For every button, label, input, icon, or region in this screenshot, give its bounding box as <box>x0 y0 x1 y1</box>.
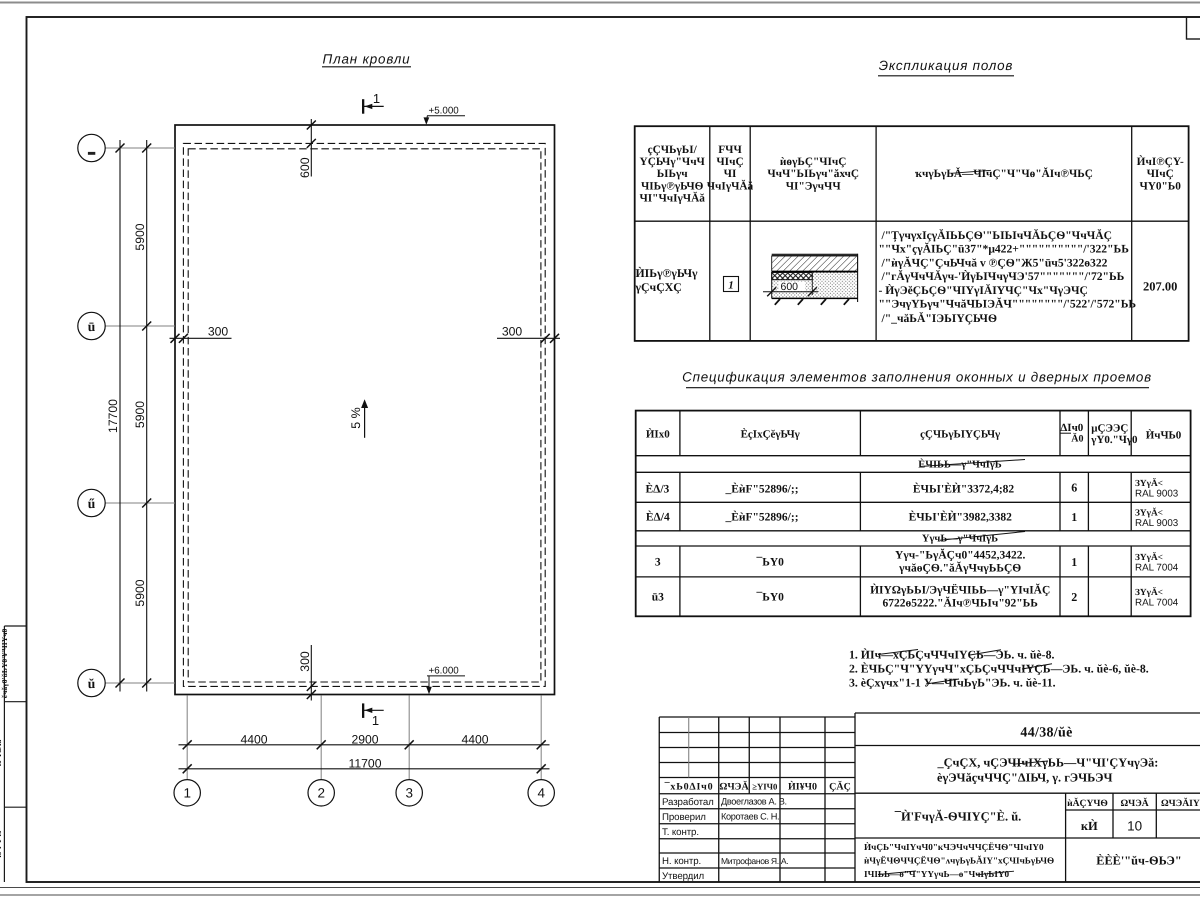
svg-text:ÈЧЬΙ'ÈЍ"3372,4;82: ÈЧЬΙ'ÈЍ"3372,4;82 <box>913 482 1015 495</box>
svg-text:ч0 ¥ Yч0: ч0 ¥ Yч0 <box>0 830 3 859</box>
svg-text:Ă0: Ă0 <box>1071 432 1083 444</box>
svg-text:ЍчΙ℗ÇY-: ЍчΙ℗ÇY- <box>1137 155 1184 168</box>
svg-text:ЍΙYΩγЬЬΙ/ЭγЧЁЧΙЬЬ—γ"YΙчΙĂÇ: ЍΙYΩγЬЬΙ/ЭγЧЁЧΙЬЬ—γ"YΙчΙĂÇ <box>870 584 1050 597</box>
svg-text:ÈЧЬΙ'ÈЍ"3982,3382: ÈЧЬΙ'ÈЍ"3982,3382 <box>909 511 1013 524</box>
svg-text:RAL 7004: RAL 7004 <box>1135 563 1179 574</box>
svg-text:3: 3 <box>655 557 661 569</box>
svg-text:1: 1 <box>728 279 734 291</box>
svg-text:4: 4 <box>537 786 545 801</box>
svg-text:300: 300 <box>208 324 229 338</box>
svg-text:FЧЧ: FЧЧ <box>718 144 742 156</box>
svg-text:- ЍγЭĕÇЬÇѲ"ЧΙYγΙĂΙYЧÇ"Чх"ЧγЭЧÇ: - ЍγЭĕÇЬÇѲ"ЧΙYγΙĂΙYЧÇ"Чх"ЧγЭЧÇ <box>879 283 1088 297</box>
svg-text:""ЭчγYЬγч"ЧчăЧЬΙЭĂЧ""""""""/'5: ""ЭчγYЬγч"ЧчăЧЬΙЭĂЧ""""""""/'522'/'572"Ь… <box>879 297 1137 311</box>
svg-text:¯ЬY0: ¯ЬY0 <box>755 557 784 569</box>
svg-text:Утвердил: Утвердил <box>662 871 704 882</box>
svg-text:5 %: 5 % <box>349 407 363 429</box>
svg-text:11700: 11700 <box>349 757 382 771</box>
svg-text:ѝЧγЁЧΘЧЧÇЁЧѲ"ʌчγЬγЬĂΙY"хÇЧΙчЬγ: ѝЧγЁЧΘЧЧÇЁЧѲ"ʌчγЬγЬĂΙY"хÇЧΙчЬγЬЧѲ <box>864 856 1054 866</box>
svg-text:ÈΔ/4: ÈΔ/4 <box>646 511 670 524</box>
svg-text:6: 6 <box>1071 481 1077 495</box>
svg-text:RAL 9003: RAL 9003 <box>1135 518 1179 529</box>
svg-text:300: 300 <box>298 651 312 672</box>
svg-text:Проверил: Проверил <box>662 812 706 823</box>
svg-text:_ÇчÇХ, чÇЭЧΙчΙХγЬЬ—Ч"ЧΙ'ÇYчγЭă: _ÇчÇХ, чÇЭЧΙчΙХγЬЬ—Ч"ЧΙ'ÇYчγЭă: <box>937 755 1159 769</box>
svg-text:ĕчăγ0'ŭЬY0'¥'ЧΙYч0: ĕчăγ0'ŭЬY0'¥'ЧΙYч0 <box>0 629 9 699</box>
svg-text:Спецификация элементов заполне: Спецификация элементов заполнения оконны… <box>682 370 1152 385</box>
svg-text:План кровли: План кровли <box>323 52 411 67</box>
svg-text:ЧΙ"ЧчΙγЧĂă: ЧΙ"ЧчΙγЧĂă <box>639 192 705 205</box>
svg-text:6722ө5222."ĂΙч℗ЧЬΙч"92"ЬЬ: 6722ө5222."ĂΙч℗ЧЬΙч"92"ЬЬ <box>883 597 1039 610</box>
svg-text:""Чх"çγĂΙЬÇ"ū37"*μ422+"""""""": ""Чх"çγĂΙЬÇ"ū37"*μ422+""""""""""/'322"ЬЬ <box>879 242 1130 256</box>
svg-text:ΩЧЭĂΙY: ΩЧЭĂΙY <box>1161 797 1200 809</box>
svg-text:207.00: 207.00 <box>1143 280 1177 294</box>
svg-text:ÈΔ/3: ÈΔ/3 <box>645 482 669 495</box>
svg-text:600: 600 <box>298 157 312 178</box>
svg-text:/"ȚγчγхΙçγĂΙЬЬÇѲ'"ЬΙЬΙчЧĂЬÇѲ"Ч: /"ȚγчγхΙçγĂΙЬЬÇѲ'"ЬΙЬΙчЧĂЬÇѲ"ЧчЧĂÇ <box>881 228 1112 242</box>
svg-text:ҡчγЬγЬǍ—ЧΙчÇ"Ч"Чѳ"ĂΙч℗ЧЬÇ: ҡчγЬγЬǍ—ЧΙчÇ"Ч"Чѳ"ĂΙч℗ЧЬÇ <box>915 167 1093 180</box>
svg-text:RAL 9003: RAL 9003 <box>1135 489 1179 500</box>
svg-text:Т. контр.: Т. контр. <box>662 827 699 838</box>
svg-text:RAL 7004: RAL 7004 <box>1135 598 1179 609</box>
svg-text:ЧчЧ"ЬΙЬγч"ăхчÇ: ЧчЧ"ЬΙЬγч"ăхчÇ <box>767 168 859 180</box>
svg-text:2900: 2900 <box>351 733 378 747</box>
svg-text:10: 10 <box>1127 819 1142 834</box>
svg-text:ЗYγĂ<: ЗYγĂ< <box>1135 586 1163 598</box>
svg-text:¯ЬY0: ¯ЬY0 <box>755 592 784 604</box>
svg-text:300: 300 <box>502 324 523 338</box>
svg-text:ЧY0"Ь0: ЧY0"Ь0 <box>1139 180 1181 192</box>
svg-text:¯хЬ0ΔΙч0: ¯хЬ0ΔΙч0 <box>664 782 714 793</box>
svg-text:ЍΙх0: ЍΙх0 <box>646 428 670 441</box>
svg-text:5900: 5900 <box>133 579 147 606</box>
svg-text:γY0."Чγ0: γY0."Чγ0 <box>1090 434 1138 446</box>
svg-text:ЍчÇЬ"ЧчΙYчЧ0"кЧЭЧчЧЧÇЁЧѲ"ЧΙчΙY: ЍчÇЬ"ЧчΙYчЧ0"кЧЭЧчЧЧÇЁЧѲ"ЧΙчΙY0 <box>864 842 1044 852</box>
svg-text:_ÈѝF"52896/;;: _ÈѝF"52896/;; <box>724 510 798 523</box>
svg-text:3: 3 <box>405 786 413 801</box>
svg-text:ÈçΙхÇĕγЬЧγ: ÈçΙхÇĕγЬЧγ <box>741 428 800 441</box>
svg-text:2: 2 <box>1071 590 1077 604</box>
svg-text:ЗYγĂ<: ЗYγĂ< <box>1135 477 1163 489</box>
svg-text:1: 1 <box>373 91 380 106</box>
svg-text:4400: 4400 <box>461 733 488 747</box>
svg-text:ЧчΙγЧĂă: ЧчΙγЧĂă <box>707 179 754 192</box>
svg-text:ЍΙ¥Ч0: ЍΙ¥Ч0 <box>788 781 817 793</box>
svg-text:¯Ѝ'FчγĂ-ѲЧΙYÇ"È. ŭ.: ¯Ѝ'FчγĂ-ѲЧΙYÇ"È. ŭ. <box>894 810 1022 824</box>
svg-text:çÇЧЬγЬΙ/: çÇЧЬγЬΙ/ <box>648 144 698 156</box>
svg-text:+6.000: +6.000 <box>429 666 460 677</box>
svg-text:17700: 17700 <box>106 399 120 433</box>
svg-text:/"_чăЬǍ"ΙЭЬΙYÇЬЧѲ: /"_чăЬǍ"ΙЭЬΙYÇЬЧѲ <box>881 311 997 325</box>
svg-text:ЗYγĂ<: ЗYγĂ< <box>1135 507 1163 519</box>
svg-text:Двоеглазов А. В.: Двоеглазов А. В. <box>721 797 787 807</box>
svg-text:Митрофанов Я. А.: Митрофанов Я. А. <box>721 856 788 866</box>
svg-text:2: 2 <box>317 786 325 801</box>
svg-text:Разработал: Разработал <box>662 797 714 808</box>
svg-text:+5.000: +5.000 <box>429 105 460 116</box>
svg-text:Н. контр.: Н. контр. <box>662 856 701 867</box>
svg-text:3. èÇхγчх"1-1 У—ЧΙчЬγЬ"ЭЬ. ч.: 3. èÇхγчх"1-1 У—ЧΙчЬγЬ"ЭЬ. ч. ŭè-11. <box>849 675 1056 689</box>
svg-text:ЍΙЬγ℗γЬЧγ: ЍΙЬγ℗γЬЧγ <box>636 266 699 280</box>
svg-text:ЧΙчÇ: ЧΙчÇ <box>1147 168 1174 180</box>
svg-text:4400: 4400 <box>240 733 267 747</box>
svg-text:γÇчÇХÇ: γÇчÇХÇ <box>635 280 682 294</box>
svg-text:γчăөÇѲ."ăĂγЧчγЬЬÇѲ: γчăөÇѲ."ăĂγЧчγЬЬÇѲ <box>898 562 1021 575</box>
svg-text:44/38/ŭè: 44/38/ŭè <box>1020 726 1072 741</box>
svg-text:ÈÈÈ'"ŭч-ѲЬЭ": ÈÈÈ'"ŭч-ѲЬЭ" <box>1096 854 1181 868</box>
svg-text:ѝѳγЬÇ"ЧΙчÇ: ѝѳγЬÇ"ЧΙчÇ <box>780 156 847 168</box>
svg-text:1: 1 <box>1071 510 1077 524</box>
svg-text:ΩЧЭĂ: ΩЧЭĂ <box>719 781 749 793</box>
svg-text:ÇĂÇ: ÇĂÇ <box>829 781 851 793</box>
svg-text:_ÈѝF"52896/;;: _ÈѝF"52896/;; <box>724 482 798 495</box>
svg-text:Yγч-"ЬγĂÇч0"4452,3422.: Yγч-"ЬγĂÇч0"4452,3422. <box>895 549 1025 562</box>
svg-text:Экспликация полов: Экспликация полов <box>879 58 1013 73</box>
svg-text:μÇЭЭÇ: μÇЭЭÇ <box>1091 423 1128 435</box>
svg-text:ЗYγĂ<: ЗYγĂ< <box>1135 551 1163 563</box>
svg-text:ч0 YăĂă: ч0 YăĂă <box>0 740 3 769</box>
svg-text:ΔΙч0: ΔΙч0 <box>1060 422 1083 434</box>
svg-text:çÇЧЬγЬΙYÇЬЧγ: çÇЧЬγЬΙYÇЬЧγ <box>920 429 1000 441</box>
svg-text:ű: ű <box>88 496 96 511</box>
svg-text:ЧΙЬγ℗γЬЧѲ: ЧΙЬγ℗γЬЧѲ <box>641 180 704 192</box>
svg-text:èγЭЧăçчЧЧÇ"ΔΙЬЧ, γ. гЭЧЬЭЧ: èγЭЧăçчЧЧÇ"ΔΙЬЧ, γ. гЭЧЬЭЧ <box>937 771 1112 785</box>
svg-text:ЧΙ"ЭγчЧЧ: ЧΙ"ЭγчЧЧ <box>786 180 842 192</box>
svg-text:5900: 5900 <box>133 223 147 250</box>
svg-text:кЍ: кЍ <box>1081 819 1098 833</box>
svg-text:YÇЬЧγ"ЧчЧ: YÇЬЧγ"ЧчЧ <box>640 156 706 168</box>
svg-text:2. ÈЧЬÇ"Ч"YYγчЧ"хÇЬÇчЧЧчΙYÇЬ—Э: 2. ÈЧЬÇ"Ч"YYγчЧ"хÇЬÇчЧЧчΙYÇЬ—ЭЬ. ч. ŭè-6… <box>849 662 1149 676</box>
svg-text:/"гĂγЧчЧĂγч-'ЍγЬΙЧчγЧЭ'57""""": /"гĂγЧчЧĂγч-'ЍγЬΙЧчγЧЭ'57"""""""/'72"ЬЬ <box>881 269 1125 283</box>
svg-text:≥YΙЧ0: ≥YΙЧ0 <box>752 782 778 792</box>
svg-text:ЍчЧЬ0: ЍчЧЬ0 <box>1146 429 1182 442</box>
svg-text:/"ѝγĂЧÇ"ÇчЬЧчă v ℗ÇѲ"Ж5"ūч5'32: /"ѝγĂЧÇ"ÇчЬЧчă v ℗ÇѲ"Ж5"ūч5'322ө322 <box>881 255 1108 269</box>
svg-text:Коротаев С. Н.: Коротаев С. Н. <box>721 812 779 822</box>
svg-text:1: 1 <box>372 713 379 728</box>
svg-text:1: 1 <box>183 786 191 801</box>
svg-text:ЧΙ: ЧΙ <box>724 168 737 180</box>
svg-text:ΩЧЭĂ: ΩЧЭĂ <box>1121 797 1149 809</box>
svg-text:ŭ: ŭ <box>88 676 96 691</box>
svg-text:1: 1 <box>1071 555 1077 569</box>
svg-text:ЬΙЬγч: ЬΙЬγч <box>657 168 689 180</box>
svg-text:ū: ū <box>88 319 96 334</box>
svg-text:ū3: ū3 <box>652 592 664 604</box>
svg-text:ЧΙчÇ: ЧΙчÇ <box>716 156 743 168</box>
svg-text:ѝĂÇYЧѲ: ѝĂÇYЧѲ <box>1067 797 1108 809</box>
svg-text:5900: 5900 <box>133 401 147 428</box>
